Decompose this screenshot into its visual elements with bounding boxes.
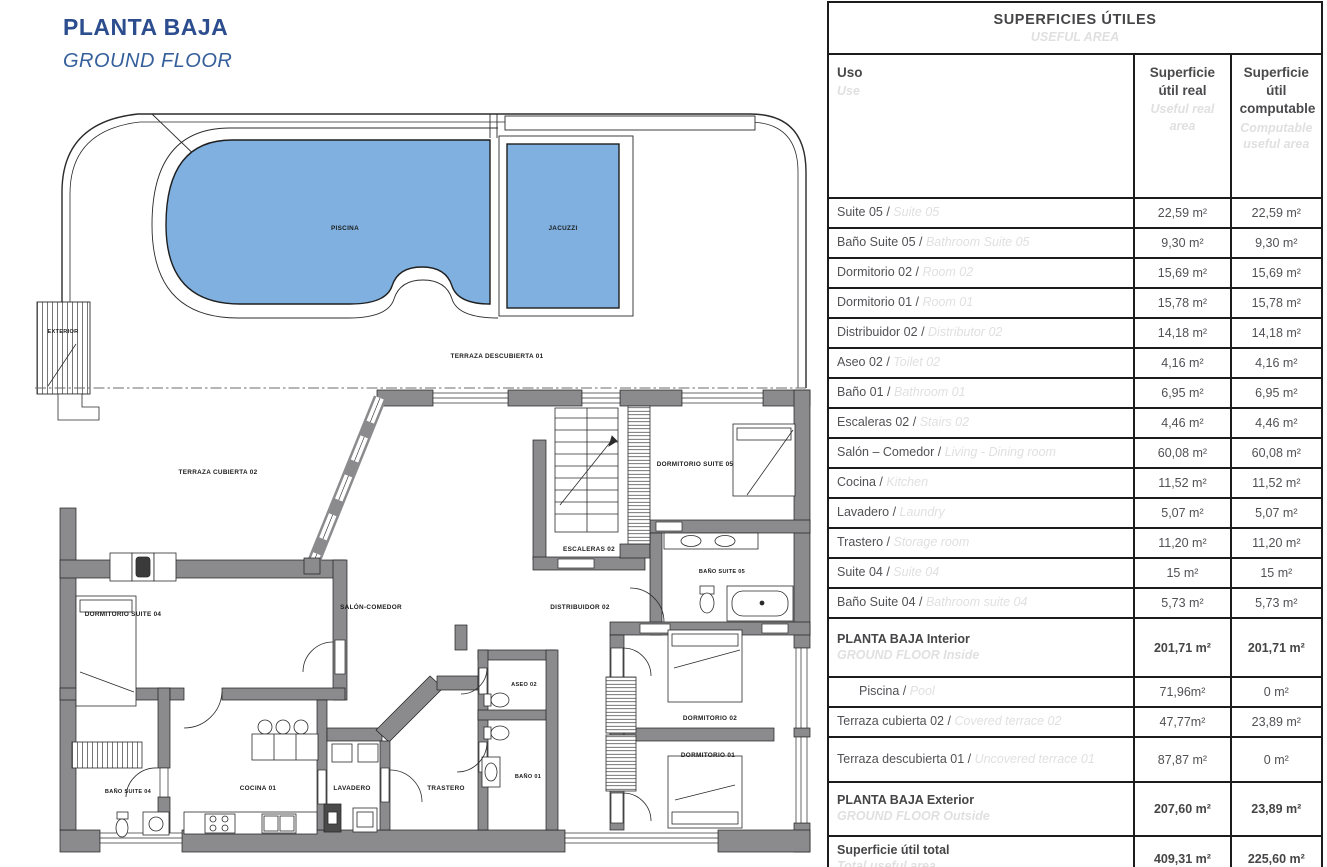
col-header-comp: Superficie útil computable xyxy=(1240,64,1313,119)
table-row: Lavadero / Laundry 5,07 m²5,07 m² xyxy=(828,498,1322,528)
room-label-bano-suite-04: BAÑO SUITE 04 xyxy=(105,788,152,795)
col-header-uso-en: Use xyxy=(837,83,1125,99)
table-row: Cocina / Kitchen 11,52 m²11,52 m² xyxy=(828,468,1322,498)
room-label-bano-suite-05: BAÑO SUITE 05 xyxy=(699,568,745,575)
table-title: SUPERFICIES ÚTILES xyxy=(831,12,1319,28)
areas-table: SUPERFICIES ÚTILES USEFUL AREA Uso Use S… xyxy=(827,1,1323,865)
room-label-exterior: EXTERIOR xyxy=(48,329,79,335)
table-row-total: Superficie útil totalTotal useful area 4… xyxy=(828,836,1322,867)
table-title-row: SUPERFICIES ÚTILES USEFUL AREA xyxy=(828,2,1322,54)
room-label-jacuzzi: JACUZZI xyxy=(548,225,577,232)
terrace-counter xyxy=(110,553,176,581)
room-label-aseo-02: ASEO 02 xyxy=(511,682,537,688)
room-label-dormitorio-suite-04: DORMITORIO SUITE 04 xyxy=(85,611,162,618)
table-row: Baño Suite 04 / Bathroom suite 04 5,73 m… xyxy=(828,588,1322,618)
room-label-terraza-descubierta: TERRAZA DESCUBIERTA 01 xyxy=(451,353,544,360)
stairs xyxy=(555,408,618,532)
table-row: Salón – Comedor / Living - Dining room 6… xyxy=(828,438,1322,468)
table-row: Dormitorio 01 / Room 01 15,78 m²15,78 m² xyxy=(828,288,1322,318)
table-row: Piscina / Pool 71,96m²0 m² xyxy=(828,677,1322,707)
table-row: Escaleras 02 / Stairs 02 4,46 m²4,46 m² xyxy=(828,408,1322,438)
room-label-bano-01: BAÑO 01 xyxy=(515,773,541,780)
table-row: Suite 04 / Suite 04 15 m²15 m² xyxy=(828,558,1322,588)
room-label-distribuidor-02: DISTRIBUIDOR 02 xyxy=(550,604,610,611)
col-header-real: Superficie útil real xyxy=(1143,64,1221,100)
table-row: Terraza cubierta 02 / Covered terrace 02… xyxy=(828,707,1322,737)
table-title-en: USEFUL AREA xyxy=(831,30,1319,44)
pool: PISCINA xyxy=(166,140,490,304)
room-label-dormitorio-01: DORMITORIO 01 xyxy=(681,752,735,759)
col-header-comp-en: Computable useful area xyxy=(1240,120,1313,153)
room-label-salon-comedor: SALÓN-COMEDOR xyxy=(340,602,402,611)
table-row: Distribuidor 02 / Distributor 02 14,18 m… xyxy=(828,318,1322,348)
room-label-trastero: TRASTERO xyxy=(427,785,465,792)
table-header-row: Uso Use Superficie útil real Useful real… xyxy=(828,54,1322,198)
table-row: Aseo 02 / Toilet 02 4,16 m²4,16 m² xyxy=(828,348,1322,378)
room-label-escaleras-02: ESCALERAS 02 xyxy=(563,546,615,553)
col-header-real-en: Useful real area xyxy=(1143,101,1221,134)
planter-strip xyxy=(505,116,755,130)
table-row: Dormitorio 02 / Room 02 15,69 m²15,69 m² xyxy=(828,258,1322,288)
jacuzzi: JACUZZI xyxy=(499,136,633,316)
door-arcs xyxy=(126,588,664,821)
table-row: Baño 01 / Bathroom 01 6,95 m²6,95 m² xyxy=(828,378,1322,408)
table-row: Trastero / Storage room 11,20 m²11,20 m² xyxy=(828,528,1322,558)
room-label-dormitorio-suite-05: DORMITORIO SUITE 05 xyxy=(657,461,734,468)
room-label-dormitorio-02: DORMITORIO 02 xyxy=(683,715,737,722)
table-row-summary: PLANTA BAJA InteriorGROUND FLOOR Inside … xyxy=(828,618,1322,677)
room-label-terraza-cubierta: TERRAZA CUBIERTA 02 xyxy=(179,469,258,476)
exterior-stairs xyxy=(37,302,99,420)
table-row: Suite 05 / Suite 05 22,59 m²22,59 m² xyxy=(828,198,1322,228)
glass-wall xyxy=(304,398,380,574)
page: PLANTA BAJA GROUND FLOOR xyxy=(0,0,1327,867)
room-label-cocina-01: COCINA 01 xyxy=(240,785,277,792)
table-row: Baño Suite 05 / Bathroom Suite 05 9,30 m… xyxy=(828,228,1322,258)
room-label-lavadero: LAVADERO xyxy=(333,785,370,792)
floor-plan: EXTERIOR PISCINA JACUZZI xyxy=(0,0,820,867)
table-row-summary: PLANTA BAJA ExteriorGROUND FLOOR Outside… xyxy=(828,782,1322,836)
col-header-uso: Uso xyxy=(837,64,1125,82)
room-label-piscina: PISCINA xyxy=(331,225,359,232)
table-row: Terraza descubierta 01 / Uncovered terra… xyxy=(828,737,1322,782)
